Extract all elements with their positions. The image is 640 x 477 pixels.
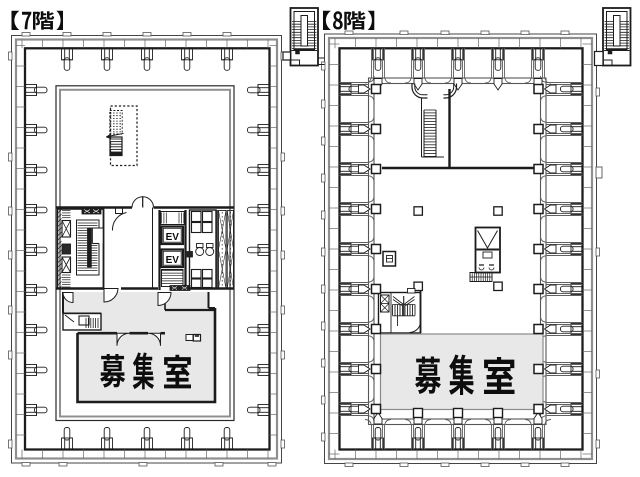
svg-text:EV: EV [166,255,180,266]
svg-text:EV: EV [166,232,180,243]
